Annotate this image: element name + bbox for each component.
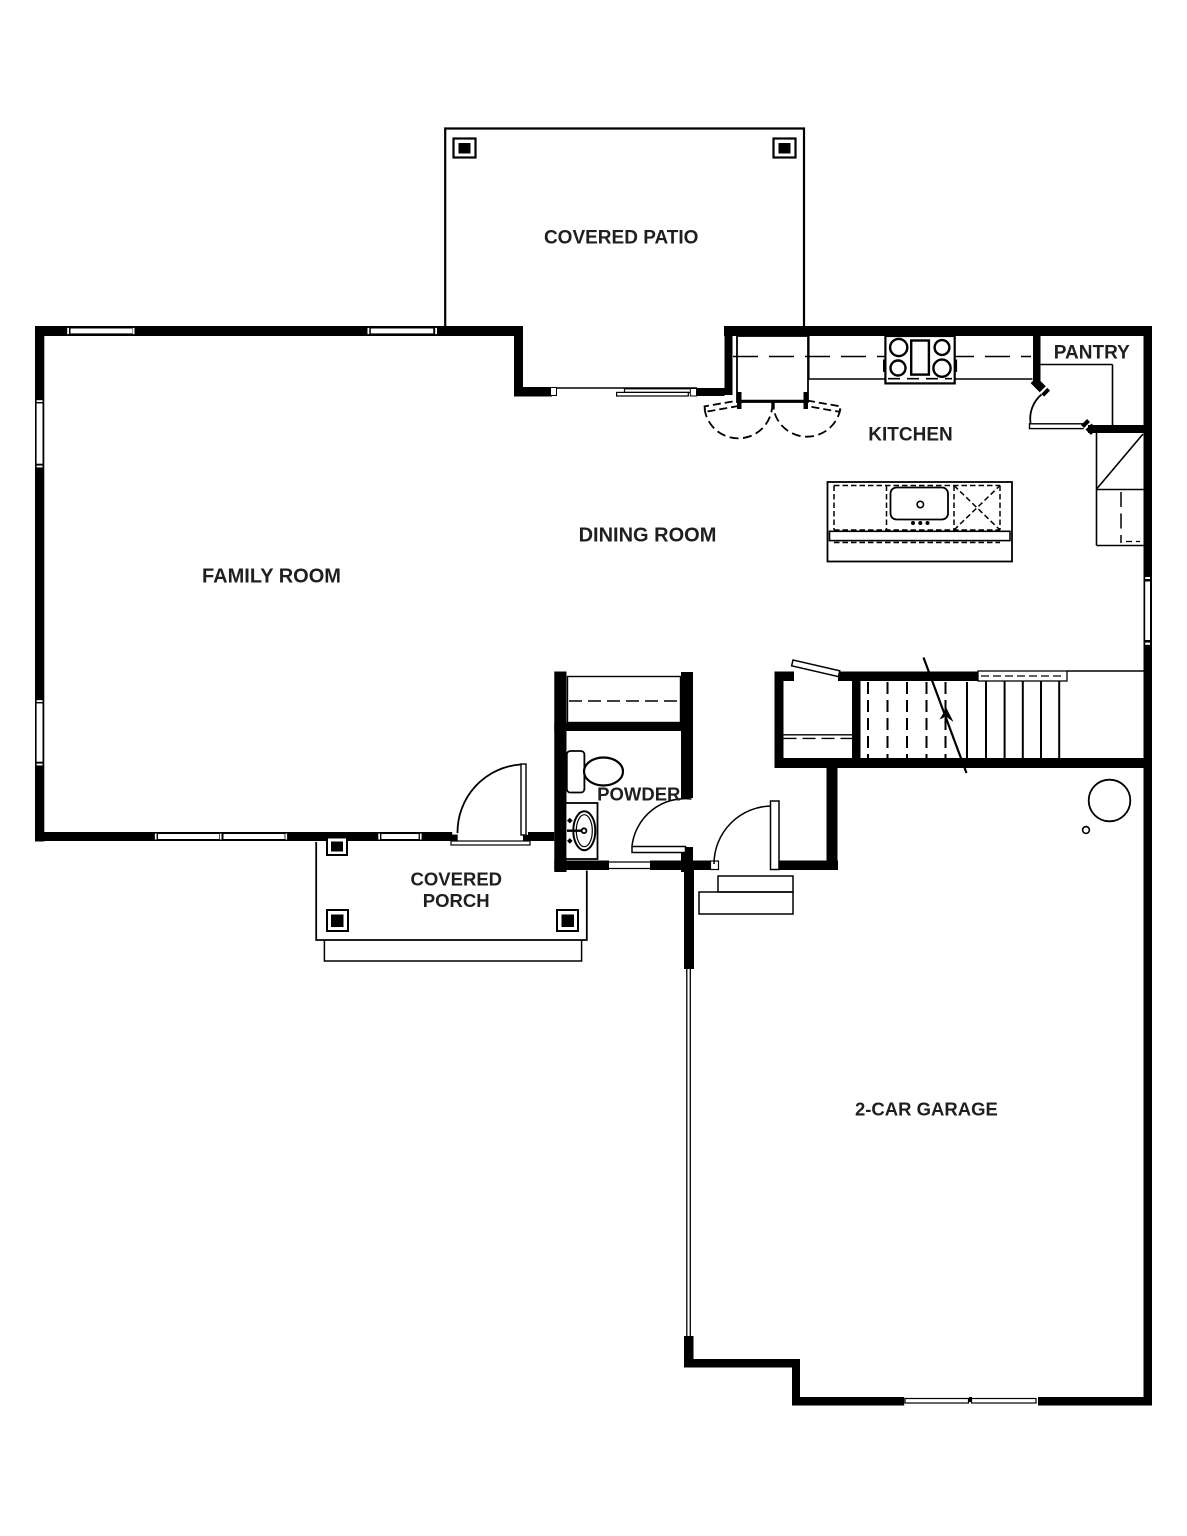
svg-text:PORCH: PORCH: [423, 890, 490, 911]
svg-text:KITCHEN: KITCHEN: [868, 425, 952, 446]
svg-text:COVERED: COVERED: [411, 868, 503, 889]
svg-text:COVERED PATIO: COVERED PATIO: [544, 228, 698, 249]
svg-text:2-CAR GARAGE: 2-CAR GARAGE: [855, 1098, 998, 1119]
svg-text:FAMILY ROOM: FAMILY ROOM: [202, 566, 341, 588]
svg-text:DINING ROOM: DINING ROOM: [579, 525, 717, 547]
svg-text:POWDER: POWDER: [597, 783, 680, 804]
svg-text:PANTRY: PANTRY: [1054, 343, 1130, 364]
